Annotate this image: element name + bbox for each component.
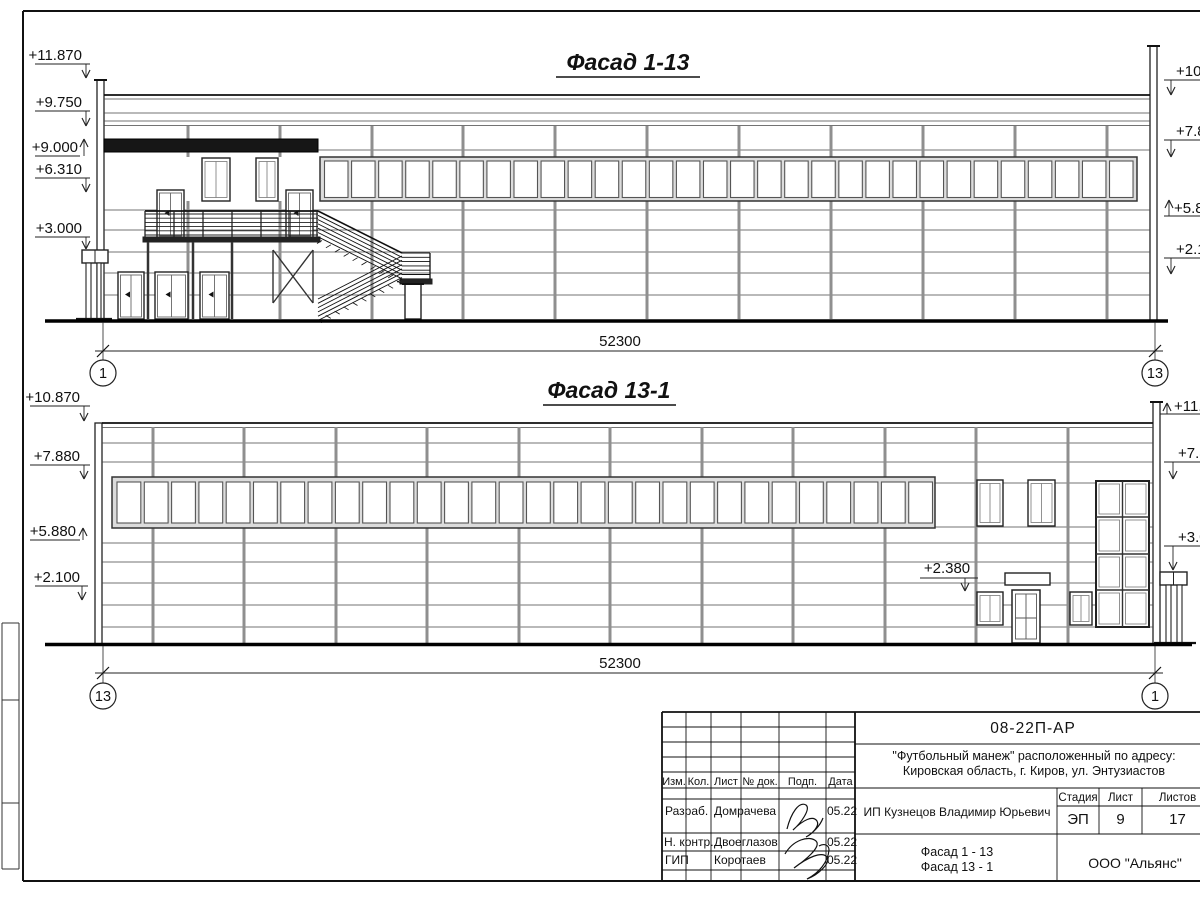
tb-project-line1: "Футбольный манеж" расположенный по адре…	[857, 749, 1200, 763]
tb-sheet-label: Лист	[1099, 792, 1142, 805]
tb-col-kol: Кол.	[686, 776, 711, 789]
tb-name: Домрачева	[714, 805, 776, 819]
tb-stage-value: ЭП	[1057, 811, 1099, 828]
tb-doc-number: 08-22П-АР	[855, 720, 1200, 738]
tb-total-sheets: 17	[1142, 811, 1200, 828]
tb-total-label: Листов	[1142, 792, 1200, 805]
tb-role: Разраб.	[665, 805, 708, 819]
tb-stage-label: Стадия	[1057, 792, 1099, 805]
title-block: Изм. Кол. Лист № док. Подп. Дата Разраб.…	[0, 0, 1200, 900]
tb-sheet-number: 9	[1099, 811, 1142, 828]
tb-col-podp: Подп.	[779, 776, 826, 789]
tb-col-data: Дата	[826, 776, 855, 789]
tb-name: Двоеглазов	[714, 836, 778, 850]
tb-date: 05.22	[827, 854, 855, 868]
tb-project-line2: Кировская область, г. Киров, ул. Энтузиа…	[857, 764, 1200, 778]
tb-col-doc: № док.	[741, 776, 779, 789]
tb-col-list: Лист	[711, 776, 741, 789]
tb-name: Коротаев	[714, 854, 766, 868]
tb-drawing-title2: Фасад 13 - 1	[857, 860, 1057, 874]
tb-client: ИП Кузнецов Владимир Юрьевич	[857, 806, 1057, 820]
tb-date: 05.22	[827, 836, 855, 850]
tb-col-izm: Изм.	[662, 776, 686, 789]
tb-role: ГИП	[665, 854, 689, 868]
tb-company: ООО "Альянс"	[1057, 855, 1200, 871]
tb-drawing-title1: Фасад 1 - 13	[857, 845, 1057, 859]
tb-date: 05.22	[827, 805, 855, 819]
tb-role: Н. контр.	[664, 836, 714, 850]
